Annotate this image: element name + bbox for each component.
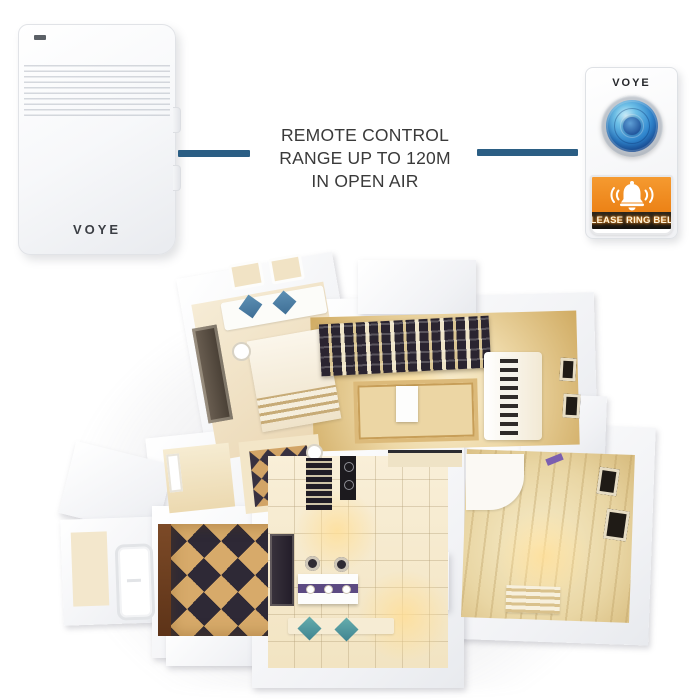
remote-label-area: PLEASE RING BELL <box>590 175 673 235</box>
annotation-line-3: IN OPEN AIR <box>252 170 478 193</box>
bell-icon <box>606 178 658 212</box>
range-annotation: REMOTE CONTROL RANGE UP TO 120M IN OPEN … <box>252 124 478 193</box>
wood-floor-strip <box>158 524 171 636</box>
kitchen-counter <box>388 450 462 467</box>
bed <box>506 585 561 614</box>
doorbell-remote: VOYE PLE <box>585 67 678 239</box>
wardrobe <box>270 534 294 606</box>
connector-line-left <box>178 150 250 157</box>
stove <box>340 456 356 500</box>
picture-frame <box>603 509 630 542</box>
connector-line-right <box>477 149 578 156</box>
coffee-table <box>396 386 418 422</box>
plate <box>306 585 315 594</box>
orange-panel <box>592 177 671 212</box>
zebra-throw <box>500 357 518 435</box>
ring-button <box>601 95 663 157</box>
dining-chair <box>305 556 320 571</box>
receiver-brand-label: VOYE <box>19 222 175 237</box>
plate <box>324 585 333 594</box>
entry-balcony <box>358 260 476 314</box>
decorative-screen <box>319 316 491 377</box>
remote-brand-label: VOYE <box>586 77 677 89</box>
ring-button-dome <box>606 100 658 152</box>
bathtub <box>115 543 156 620</box>
picture-frame <box>562 394 580 419</box>
bed-runner <box>257 385 340 424</box>
tub-divider <box>127 579 141 582</box>
side-clip <box>173 107 181 133</box>
bench-seat <box>71 531 110 606</box>
button-hub <box>623 117 641 135</box>
dining-table <box>298 574 358 604</box>
annotation-line-1: REMOTE CONTROL <box>252 124 478 147</box>
picture-frame <box>559 358 576 382</box>
doorbell-receiver: VOYE <box>18 24 176 255</box>
side-clip <box>173 165 181 191</box>
speaker-vents <box>24 61 170 119</box>
display-cabinet <box>306 458 332 510</box>
annotation-line-2: RANGE UP TO 120M <box>252 147 478 170</box>
plate <box>342 585 351 594</box>
glow-light <box>354 566 454 666</box>
led-indicator <box>34 35 46 40</box>
ring-bell-label: PLEASE RING BELL <box>592 212 671 229</box>
dining-chair <box>334 557 349 572</box>
vase <box>232 342 251 361</box>
floor-plan <box>54 256 650 692</box>
picture-frame <box>596 467 620 497</box>
